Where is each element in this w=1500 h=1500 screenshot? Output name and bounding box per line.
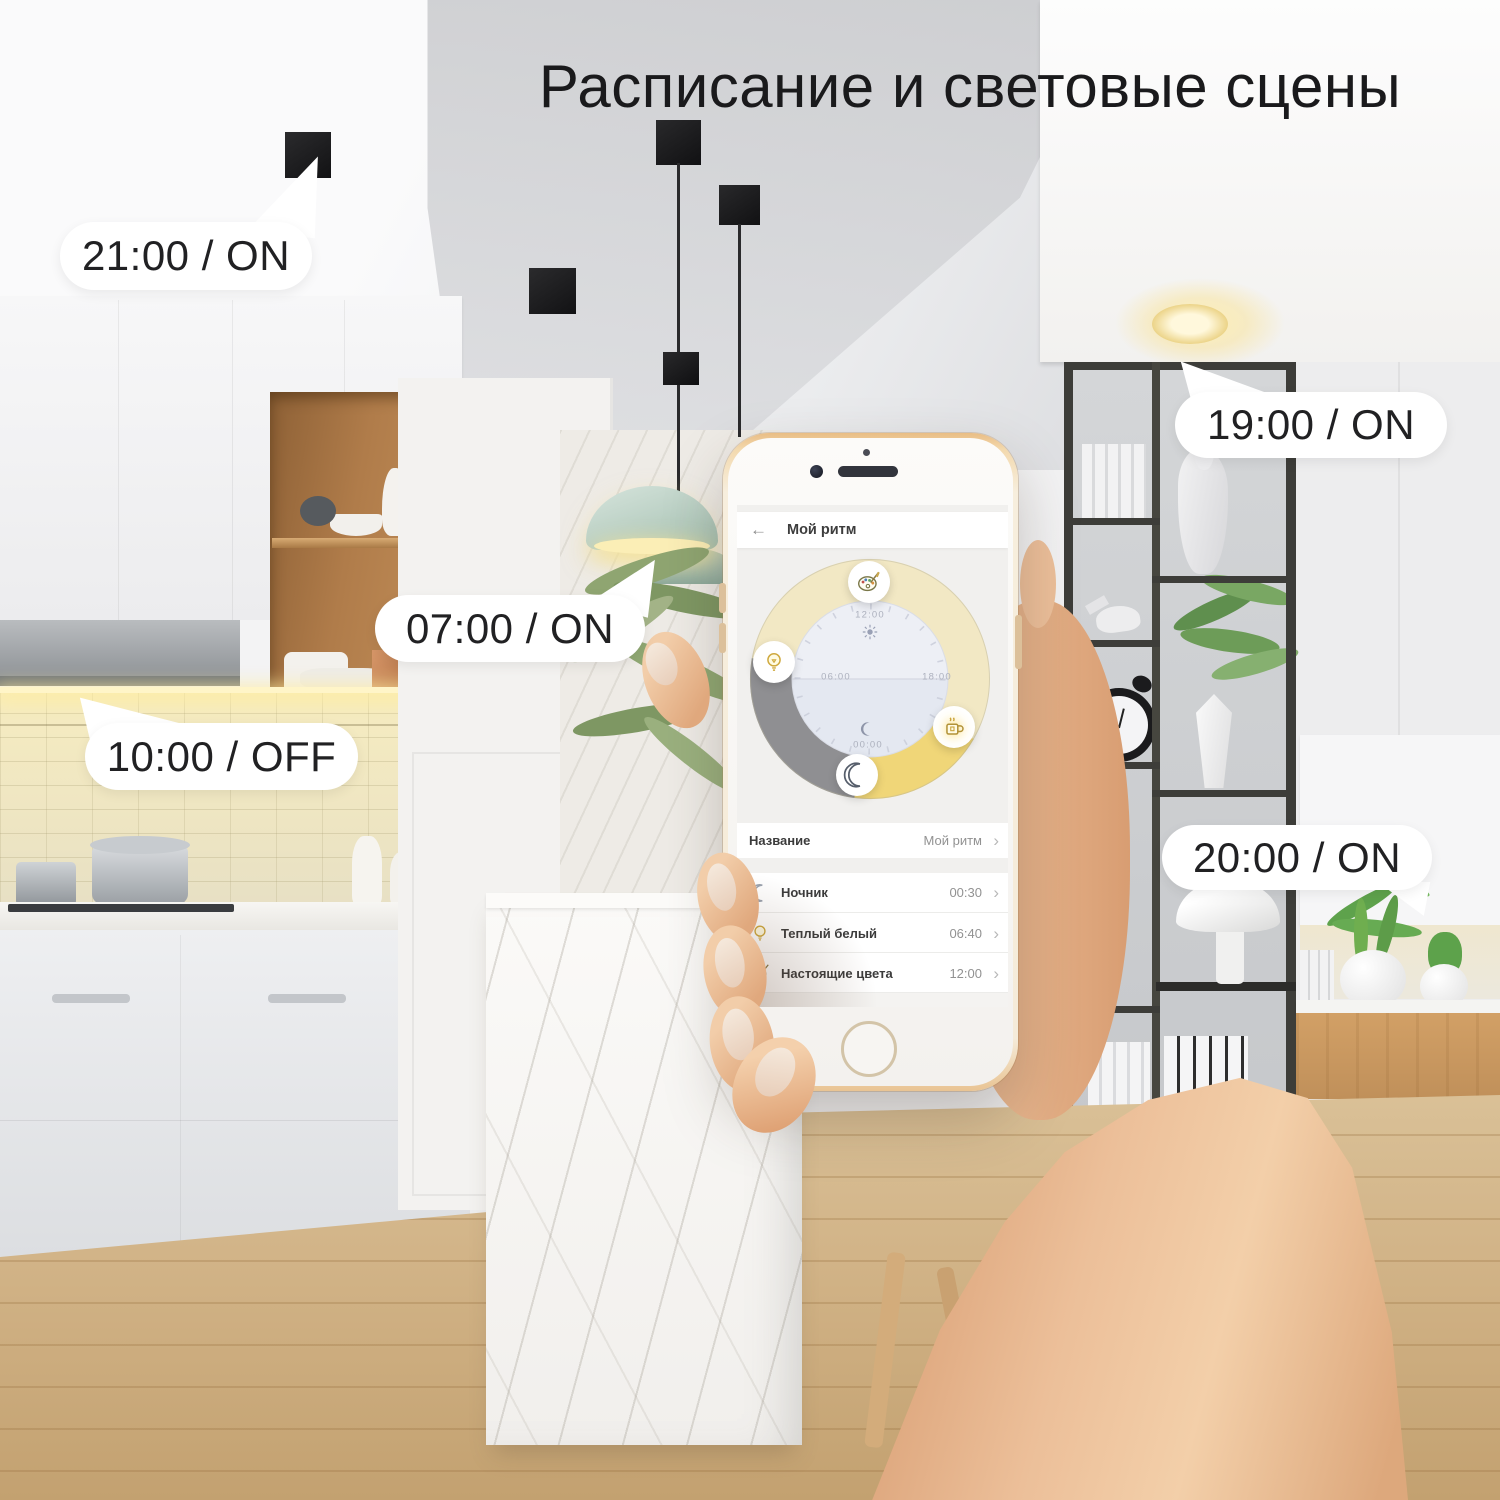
sideboard-books	[1300, 950, 1334, 1006]
drawer-handle	[52, 994, 130, 1003]
range-hood	[0, 620, 240, 680]
cabinet-seam	[180, 935, 181, 1255]
moon-icon	[843, 761, 871, 789]
back-button[interactable]: ←	[750, 520, 767, 540]
hand-finger-bump	[1020, 540, 1056, 628]
bulb-icon	[761, 649, 787, 675]
sideboard	[1296, 1013, 1500, 1099]
cabinet-seam	[118, 300, 119, 622]
callout-1900: 19:00 / ON	[1175, 392, 1447, 458]
sideboard-top	[1296, 1000, 1500, 1013]
ceiling-spot-cube	[529, 268, 576, 314]
cooktop	[8, 904, 234, 912]
phone-volume-button[interactable]	[719, 583, 726, 613]
clock-label-06: 06:00	[821, 672, 851, 683]
chevron-right-icon: ›	[993, 925, 999, 942]
callout-2000: 20:00 / ON	[1162, 825, 1432, 890]
clock-label-00: 00:00	[853, 740, 883, 751]
pendant-canopy-cube	[663, 352, 699, 385]
callout-2100: 21:00 / ON	[60, 222, 312, 290]
teapot	[300, 496, 336, 526]
scene-badge-moon[interactable]	[836, 754, 878, 796]
pendant-mount-cube	[719, 185, 760, 225]
phone-power-button[interactable]	[1015, 615, 1022, 669]
scene-time: 12:00	[949, 966, 982, 981]
scene-time: 00:30	[949, 885, 982, 900]
jar	[352, 836, 382, 904]
scene-badge-coffee[interactable]	[933, 706, 975, 748]
shelf-frame	[1286, 362, 1296, 1134]
callout-1000: 10:00 / OFF	[85, 723, 358, 790]
sun-icon	[861, 623, 879, 641]
page-title: Расписание и световые сцены	[520, 52, 1420, 121]
scene-time: 06:40	[949, 926, 982, 941]
phone-sensor-dot	[863, 449, 870, 456]
pendant-cord	[738, 224, 741, 437]
shelf-frame	[1152, 362, 1160, 1134]
shelf-frame	[1152, 790, 1296, 797]
name-row-value: Мой ритм	[924, 833, 982, 848]
phone-volume-button[interactable]	[719, 623, 726, 653]
shelf-frame	[1064, 362, 1296, 370]
smartphone: ← Мой ритм 12:00 06:00 18:00	[723, 433, 1018, 1091]
recessed-light-icon	[1152, 304, 1228, 344]
clock-label-12: 12:00	[855, 610, 885, 621]
chevron-right-icon: ›	[993, 832, 999, 849]
pot-lid	[90, 836, 190, 854]
app-title: Мой ритм	[787, 522, 856, 538]
scene-badge-bulb[interactable]	[753, 641, 795, 683]
shelf-books	[1082, 444, 1146, 518]
phone-speaker	[838, 466, 898, 477]
range-hood-underside	[0, 676, 240, 686]
rhythm-clock: 12:00 06:00 18:00 00:00	[740, 549, 1000, 809]
app-header: ← Мой ритм	[737, 512, 1008, 548]
drawer-handle	[268, 994, 346, 1003]
palette-icon	[856, 569, 882, 595]
shelf-frame	[1152, 576, 1296, 583]
coffee-icon	[941, 714, 967, 740]
shelf-plant	[1160, 570, 1296, 710]
scene-badge-palette[interactable]	[848, 561, 890, 603]
phone-camera	[810, 465, 823, 478]
table-lamp-stem	[1216, 926, 1244, 984]
pot-large	[92, 846, 188, 904]
moon-icon	[860, 721, 876, 737]
pendant-mount-cube	[656, 120, 701, 165]
phone-screen: ← Мой ритм 12:00 06:00 18:00	[737, 505, 1008, 1007]
cabinet-seam	[232, 300, 233, 622]
chevron-right-icon: ›	[993, 965, 999, 982]
callout-0700: 07:00 / ON	[375, 595, 645, 662]
pot-small	[16, 862, 76, 906]
shelf-frame	[1064, 518, 1160, 525]
marketing-banner: ← Мой ритм 12:00 06:00 18:00	[0, 0, 1500, 1500]
home-button[interactable]	[841, 1021, 897, 1077]
chevron-right-icon: ›	[993, 884, 999, 901]
clock-label-18: 18:00	[922, 672, 952, 683]
bowl	[330, 514, 382, 536]
